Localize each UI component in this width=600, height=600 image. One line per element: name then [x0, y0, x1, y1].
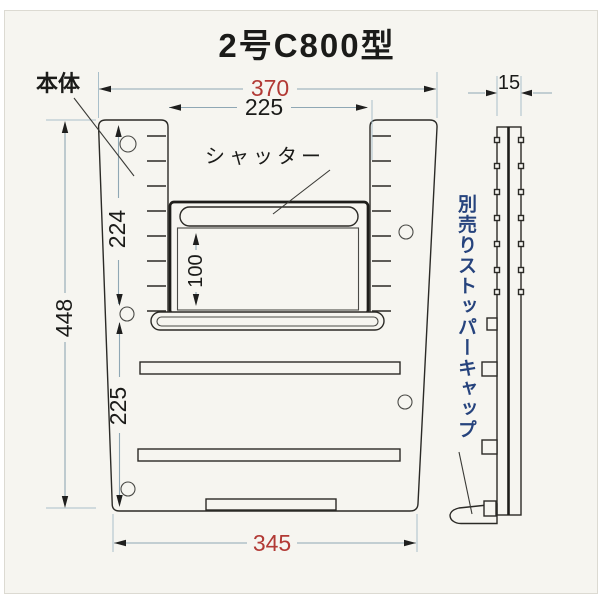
bottom-edge-tab	[206, 499, 336, 510]
shutter-label: シャッター	[205, 145, 325, 168]
front-view: 100	[99, 120, 437, 511]
technical-drawing: 100	[0, 0, 600, 600]
drawing-canvas: 100	[0, 0, 600, 600]
side-left-tabs	[482, 318, 497, 454]
shutter-assembly: 100	[151, 202, 384, 330]
dim-345-text: 345	[253, 530, 291, 556]
dim-224-text: 224	[104, 210, 130, 249]
shutter-bottom-rail	[151, 312, 384, 330]
stopper-cap-clip	[484, 501, 496, 516]
dim-15-text: 15	[498, 72, 520, 94]
body-slot-lower	[138, 449, 400, 461]
drawing-title: 2号C800型	[218, 27, 395, 64]
body-slot-upper	[140, 362, 400, 374]
dim-bottom-width: 345	[113, 514, 417, 556]
shutter-top-slot	[180, 207, 358, 226]
dim-448-text: 448	[51, 299, 77, 337]
dim-100-text: 100	[185, 254, 207, 287]
dim-total-height: 448	[46, 120, 96, 508]
dim-225-top-text: 225	[245, 94, 283, 120]
dim-side-thickness: 15	[468, 72, 552, 116]
stopper-cap-note: 別売りストッパーキャップ	[447, 194, 479, 466]
body-label: 本体	[36, 71, 81, 96]
dim-225-lower-text: 225	[105, 387, 131, 425]
